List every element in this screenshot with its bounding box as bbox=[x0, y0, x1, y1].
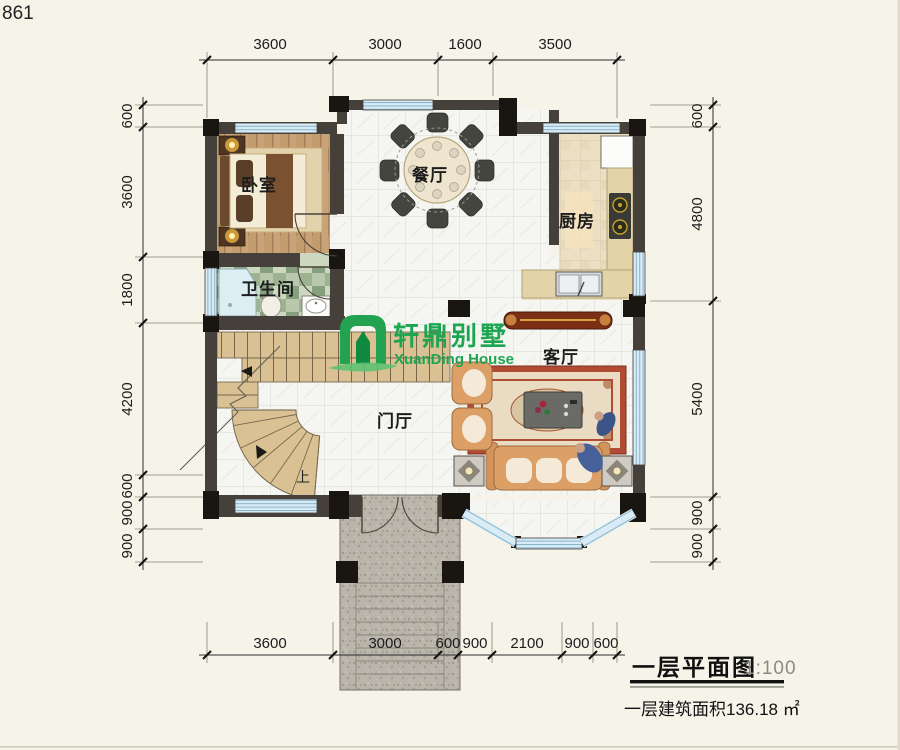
lamp-top bbox=[229, 142, 235, 148]
kitchen-label: 厨房 bbox=[559, 211, 595, 231]
window-kitchen-right bbox=[633, 252, 645, 296]
bedroom-label: 卧室 bbox=[241, 175, 277, 195]
dim-top-2: 3000 bbox=[368, 36, 401, 53]
living-label: 客厅 bbox=[542, 347, 579, 367]
foyer-label: 门厅 bbox=[377, 411, 413, 431]
dining-label: 餐厅 bbox=[412, 165, 448, 185]
floor-plan-canvas: 上 bbox=[0, 0, 900, 750]
dim-left-5: 600 bbox=[119, 473, 136, 498]
dim-top-1: 3600 bbox=[253, 36, 286, 53]
logo-name-en: XuanDing House bbox=[394, 351, 514, 368]
stairs-up-label: 上 bbox=[296, 469, 310, 485]
dim-left-3: 1800 bbox=[119, 273, 136, 306]
dim-top-4: 3500 bbox=[538, 36, 571, 53]
living-furniture bbox=[452, 362, 632, 490]
wall-bath-bottom bbox=[205, 316, 345, 330]
person-2-head bbox=[594, 411, 603, 420]
bathroom-door-threshold bbox=[298, 253, 330, 267]
wall-bedroom-bath bbox=[205, 253, 300, 267]
bottom-edge-line bbox=[0, 746, 900, 748]
dim-left-4: 4200 bbox=[119, 382, 136, 415]
dim-bottom-7: 600 bbox=[593, 635, 618, 652]
window-kitchen-top bbox=[543, 123, 620, 133]
armchair-2-cushion bbox=[462, 415, 486, 443]
dim-top-3: 1600 bbox=[448, 36, 481, 53]
drawing-scale: 1:100 bbox=[744, 658, 797, 679]
dim-left-7: 900 bbox=[119, 533, 136, 558]
window-bay-bottom bbox=[516, 538, 582, 549]
lamp-bottom bbox=[229, 233, 235, 239]
bath-sink bbox=[306, 299, 326, 313]
side-table-right-lamp bbox=[613, 467, 621, 475]
dim-bottom-6: 900 bbox=[564, 635, 589, 652]
dim-bottom-4: 900 bbox=[462, 635, 487, 652]
coffee-table bbox=[524, 392, 582, 428]
side-table-left-lamp bbox=[465, 467, 473, 475]
person-1-head bbox=[575, 443, 585, 453]
page-number: 861 bbox=[2, 3, 34, 24]
console-table bbox=[504, 312, 612, 329]
dim-right-2: 4800 bbox=[689, 197, 706, 230]
dimension-left: 600 3600 1800 4200 600 900 900 bbox=[119, 97, 203, 570]
bed-pillow-2 bbox=[236, 195, 253, 222]
window-dining-top bbox=[363, 100, 433, 110]
title-underline-2 bbox=[630, 686, 784, 688]
title-block: 一层平面图 1:100 一层建筑面积136.18 ㎡ bbox=[624, 654, 800, 719]
dim-bottom-5: 2100 bbox=[510, 635, 543, 652]
dim-bottom-3: 600 bbox=[435, 635, 460, 652]
sofa-cushion-2 bbox=[536, 458, 562, 483]
title-underline-1 bbox=[630, 680, 784, 683]
dim-bottom-2: 3000 bbox=[368, 635, 401, 652]
window-bathroom-left bbox=[205, 268, 217, 316]
sofa-cushion-1 bbox=[506, 458, 532, 483]
dim-left-1: 600 bbox=[119, 103, 136, 128]
dim-right-5: 900 bbox=[689, 533, 706, 558]
dim-bottom-1: 3600 bbox=[253, 635, 286, 652]
fridge bbox=[601, 136, 633, 168]
drawing-title: 一层平面图 bbox=[632, 654, 757, 680]
logo-name-cn: 轩鼎别墅 bbox=[393, 321, 509, 351]
sink-basin-1 bbox=[559, 275, 579, 293]
dim-right-3: 5400 bbox=[689, 382, 706, 415]
window-living-right bbox=[633, 350, 645, 465]
floor-plan-page: 上 bbox=[0, 0, 900, 750]
dim-left-2: 3600 bbox=[119, 175, 136, 208]
armchair-1-cushion bbox=[462, 369, 486, 397]
dim-right-4: 900 bbox=[689, 500, 706, 525]
shower-drain bbox=[228, 303, 232, 307]
entry-porch bbox=[340, 495, 460, 690]
dimension-right: 600 4800 5400 900 900 bbox=[650, 97, 721, 570]
window-bedroom-top bbox=[235, 123, 317, 133]
bathroom-label: 卫生间 bbox=[241, 279, 295, 299]
dim-left-6: 900 bbox=[119, 500, 136, 525]
dim-right-1: 600 bbox=[689, 103, 706, 128]
bed-headboard bbox=[220, 156, 231, 226]
wall-bedroom-right-upper bbox=[330, 134, 344, 214]
window-stairs-bottom bbox=[235, 499, 317, 513]
floor-area-text: 一层建筑面积136.18 ㎡ bbox=[624, 700, 800, 719]
